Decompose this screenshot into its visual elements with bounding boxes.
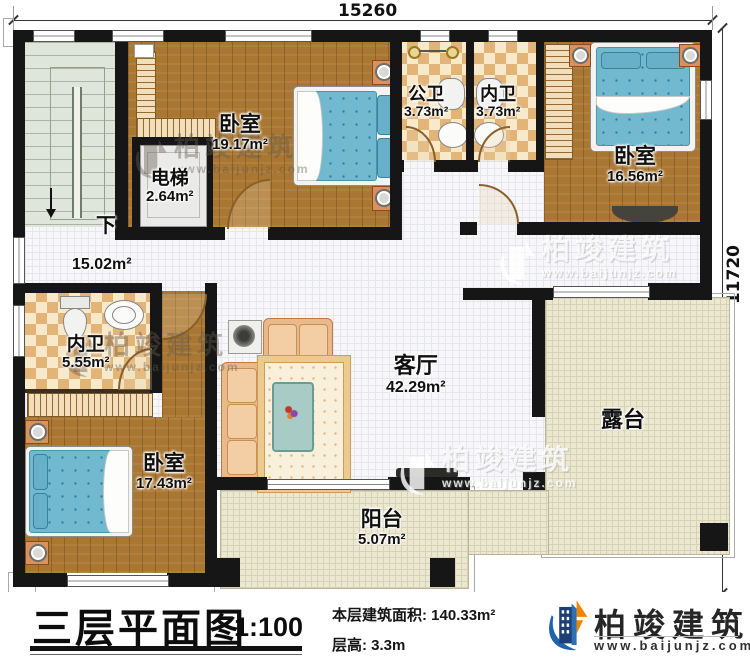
wall [700, 30, 712, 300]
room-label-living: 客厅 42.29m² [386, 354, 446, 397]
wall [268, 227, 402, 240]
room-area: 5.07m² [358, 532, 406, 549]
sofa-cushion [299, 324, 328, 358]
window [33, 30, 75, 42]
wall [463, 288, 553, 300]
room-label-balcony: 阳台 5.07m² [358, 508, 406, 548]
bed-sheet [103, 450, 129, 533]
room-name: 客厅 [394, 354, 438, 379]
room-label-inner-bath-left: 内卫 5.55m² [62, 334, 110, 372]
room-name: 卧室 [219, 113, 261, 137]
room-area: 15.02m² [72, 256, 132, 274]
room-area: 3.73m² [404, 104, 448, 120]
stair-arrow-head-icon [46, 209, 56, 218]
sofa-cushion [227, 368, 257, 403]
wall [434, 160, 478, 172]
sink-basin [112, 306, 136, 324]
pillow [601, 52, 641, 69]
wall [390, 42, 402, 227]
floor-height-text: 层高: 3.3m [332, 634, 405, 655]
room-area: 2.64m² [146, 189, 194, 206]
wall [115, 227, 225, 240]
room-area: 5.55m² [62, 355, 110, 372]
bed-sheet [297, 91, 323, 181]
window [13, 237, 25, 284]
wall [508, 160, 544, 172]
floor-plan: 15260 11720 [0, 0, 750, 664]
room-label-bedroom-tl: 卧室 19.17m² [212, 113, 268, 153]
pillow [33, 454, 48, 490]
wall [205, 283, 217, 573]
room-name: 内卫 [480, 84, 516, 104]
stair-rail [72, 87, 82, 218]
room-label-terrace: 露台 [601, 408, 645, 433]
room-label-public-bath: 公卫 3.73m² [404, 84, 448, 120]
window [267, 479, 390, 490]
terrace-connector-floor [467, 490, 549, 555]
plant-icon [233, 325, 255, 347]
room-name: 露台 [601, 408, 645, 433]
wall [536, 42, 544, 160]
sink [438, 122, 468, 148]
closet [27, 393, 153, 417]
faucet-icon [419, 50, 433, 52]
wall [517, 222, 712, 235]
room-name: 内卫 [67, 334, 105, 355]
room-name: 阳台 [361, 508, 403, 532]
sofa-cushion [227, 404, 257, 439]
sofa-cushion [268, 324, 297, 358]
brand-divider [594, 636, 738, 637]
window [225, 30, 312, 42]
room-name: 公卫 [408, 84, 444, 104]
wall [390, 160, 404, 172]
stairs-down-label: 下 [96, 215, 116, 237]
extension-line [712, 6, 713, 30]
title-bar: 三层平面图 1:100 本层建筑面积: 140.33m² 层高: 3.3m 柏竣… [0, 592, 750, 664]
window [553, 286, 650, 298]
window [67, 575, 169, 587]
pillar [430, 558, 455, 587]
room-label-bedroom-tr: 卧室 16.56m² [607, 145, 663, 185]
window [13, 305, 25, 357]
room-label-bedroom-bl: 卧室 17.43m² [136, 452, 192, 492]
lamp-icon [682, 47, 699, 64]
window [488, 30, 518, 42]
room-name: 电梯 [151, 168, 189, 189]
wall [115, 42, 128, 233]
closet [136, 52, 156, 120]
room-area: 42.29m² [386, 379, 446, 397]
plan-scale: 1:100 [234, 612, 303, 643]
room-name: 卧室 [614, 145, 656, 169]
pillar [700, 523, 728, 551]
corner-shelf [134, 44, 154, 58]
brand-logo-icon [540, 597, 590, 655]
wall [648, 283, 702, 300]
floor-area-text: 本层建筑面积: 140.33m² [332, 604, 495, 625]
lamp-icon [29, 423, 47, 441]
wall [460, 222, 477, 235]
hall-area-label: 15.02m² [72, 256, 132, 274]
sofa-cushion [227, 440, 257, 475]
window [700, 80, 712, 120]
wall [388, 477, 470, 490]
lamp-icon [29, 544, 47, 562]
room-label-inner-bath-top: 内卫 3.73m² [476, 84, 520, 120]
title-underline-thin [30, 654, 302, 655]
room-name: 卧室 [143, 452, 185, 476]
wall-pillar [205, 558, 240, 587]
wall [532, 300, 545, 417]
stair-arrow [50, 188, 52, 210]
dimension-top-value: 15260 [338, 1, 397, 21]
room-area: 16.56m² [607, 169, 663, 186]
pillow [33, 493, 48, 529]
lamp-icon [572, 47, 589, 64]
brand-site: www.baijunjz.com [594, 638, 750, 653]
room-area: 19.17m² [212, 137, 268, 154]
wall [466, 42, 474, 160]
wall [217, 477, 267, 490]
window [112, 30, 164, 42]
title-underline [30, 646, 302, 651]
wall [13, 573, 67, 587]
window [420, 30, 450, 42]
room-label-elevator: 电梯 2.64m² [146, 168, 194, 206]
faucet-icon [432, 50, 446, 52]
wall-pillar [523, 472, 545, 490]
faucet-icon [408, 46, 421, 59]
wall [25, 283, 162, 293]
faucet-icon [446, 46, 459, 59]
table-flowers-icon [283, 404, 299, 420]
room-area: 3.73m² [476, 104, 520, 120]
room-area: 17.43m² [136, 476, 192, 493]
